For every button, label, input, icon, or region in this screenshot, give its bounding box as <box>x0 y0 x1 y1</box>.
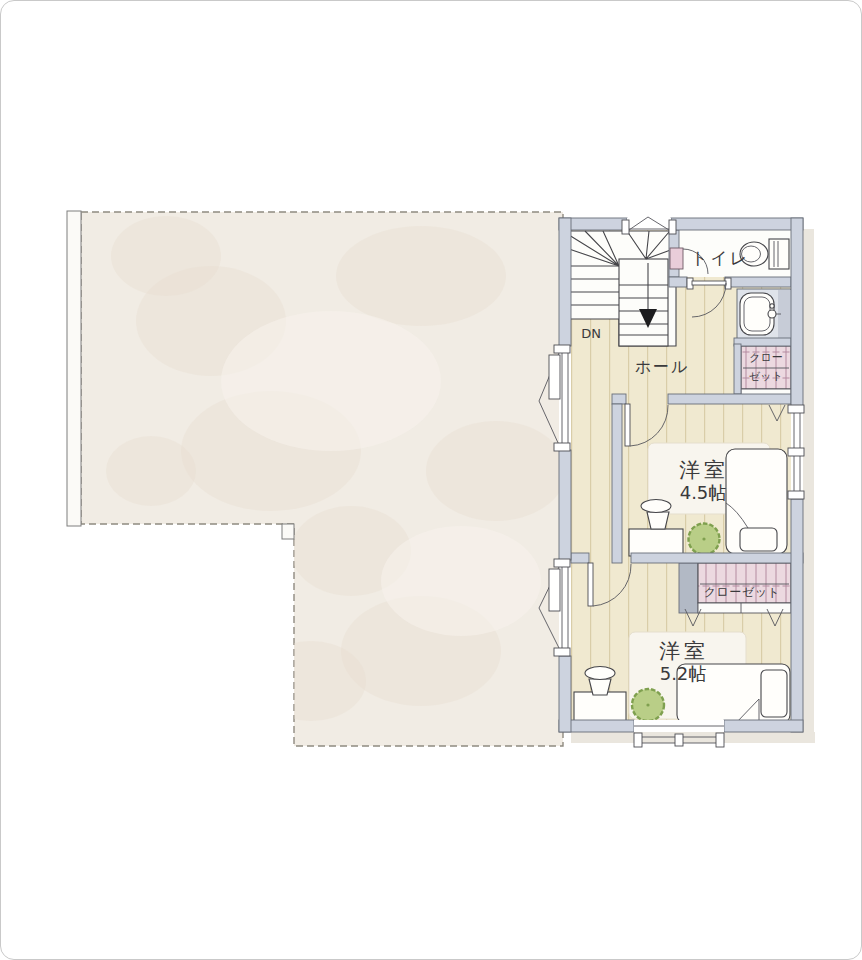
balcony-step-wall-stub <box>282 524 294 539</box>
desk-room-a <box>629 529 683 556</box>
closet-upper-label-line1: クロー <box>749 349 783 368</box>
roof-balcony-area <box>67 211 566 746</box>
room-b-size-label: 5.2帖 <box>660 663 707 685</box>
room-a-size-label: 4.5帖 <box>680 482 727 504</box>
plant-room-a-icon <box>689 524 720 555</box>
room-a-name-label: 洋室 <box>679 458 729 483</box>
bed-room-a <box>726 449 787 554</box>
desk-room-b <box>574 692 626 723</box>
room-b-name-label: 洋室 <box>659 639 709 664</box>
balcony-left-wall <box>67 211 81 526</box>
closet-lower-label: クローゼット <box>704 585 780 599</box>
building-shadow-right <box>803 229 814 741</box>
closet-upper-label: クロー ゼット <box>749 349 783 386</box>
closet-upper-label-line2: ゼット <box>749 368 783 387</box>
washbasin <box>737 289 791 340</box>
floor-plan-drawing <box>1 1 862 960</box>
hall-label: ホール <box>635 357 690 376</box>
toilet-label: トイレ <box>691 248 749 268</box>
floor-plan-frame: DN トイレ ホール クロー ゼット 洋室 4.5帖 クローゼット 洋室 5.2… <box>0 0 862 960</box>
faucet-icon <box>770 304 774 308</box>
plant-room-b-icon <box>632 689 664 721</box>
stairs-dn-label: DN <box>581 326 601 342</box>
building-shadow-bottom <box>571 732 815 743</box>
